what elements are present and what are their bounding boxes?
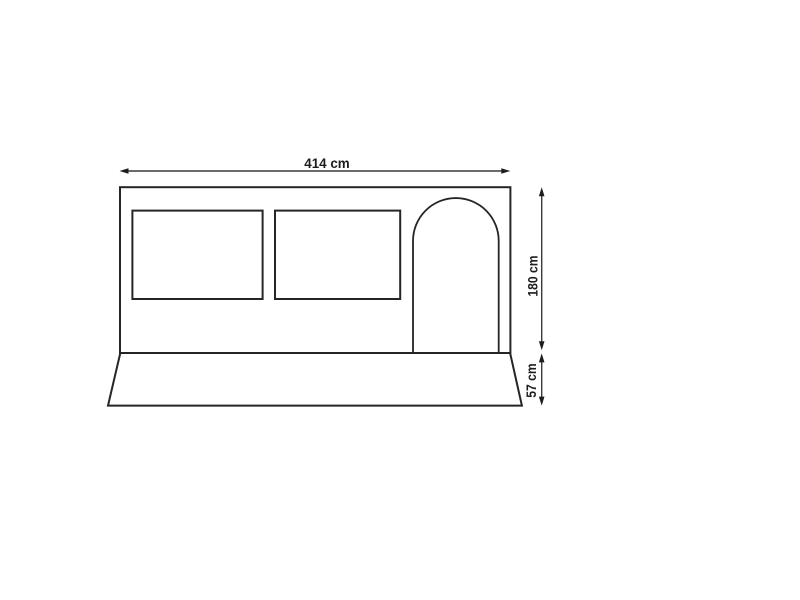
svg-text:180 cm: 180 cm — [525, 255, 541, 296]
svg-text:57 cm: 57 cm — [523, 363, 539, 397]
svg-text:414 cm: 414 cm — [304, 156, 350, 171]
